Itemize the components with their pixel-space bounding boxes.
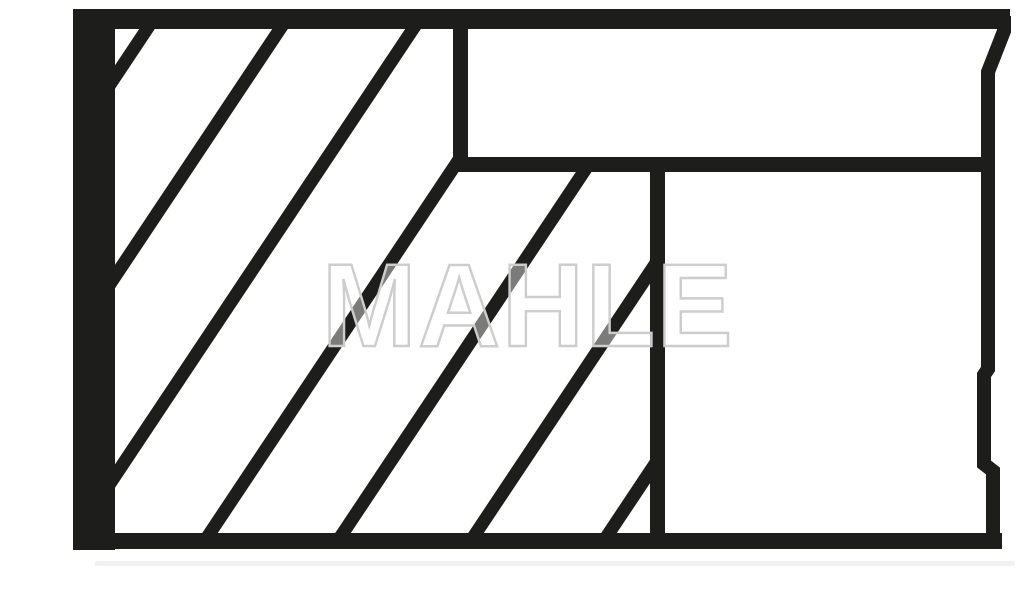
scan-shadow: [95, 561, 1015, 566]
hatch-line: [201, 19, 553, 547]
groove-divider-vertical-low: [650, 172, 665, 533]
groove-divider-vertical-top: [453, 29, 468, 172]
groove-divider-horizontal: [453, 157, 990, 172]
piston-ring-cross-section-svg: [0, 0, 1024, 606]
product-line-drawing: MAHLE: [0, 0, 1024, 606]
left-border: [73, 9, 115, 550]
hatch-line: [467, 19, 819, 547]
section-hatch-lines: [0, 19, 952, 547]
hatch-line: [68, 19, 420, 547]
right-edge-profile: [984, 16, 1004, 541]
top-border: [73, 9, 1010, 29]
bottom-border: [73, 533, 1002, 549]
hatch-line: [334, 19, 686, 547]
